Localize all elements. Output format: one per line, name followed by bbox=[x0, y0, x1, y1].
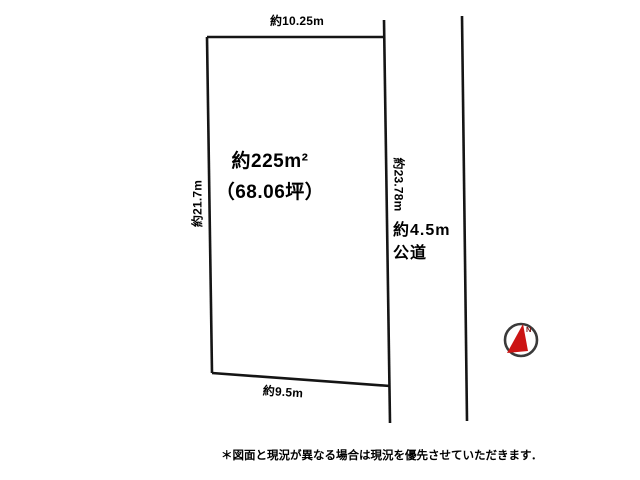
plot-outline-drawing: N bbox=[0, 0, 640, 480]
road-info-block: 約4.5m 公道 bbox=[393, 219, 450, 265]
plot-area-block: 約225m² （68.06坪） bbox=[180, 146, 360, 208]
top-width-dimension-label: 約10.25m bbox=[237, 12, 357, 29]
compass-icon: N bbox=[505, 324, 537, 356]
plot-area-tsubo-label: （68.06坪） bbox=[180, 177, 360, 208]
road-width-label: 約4.5m bbox=[393, 219, 450, 242]
right-height-dimension-label: 約23.78m bbox=[391, 140, 408, 230]
plot-area-sqm-label: 約225m² bbox=[180, 146, 360, 177]
plot-right-edge-road-left-line bbox=[384, 20, 390, 423]
land-plot-diagram: N 約10.25m 約21.7m 約23.78m 約9.5m 約225m² （6… bbox=[0, 0, 640, 480]
compass-north-label: N bbox=[526, 325, 531, 334]
road-right-line bbox=[462, 16, 467, 421]
road-type-label: 公道 bbox=[393, 242, 450, 265]
disclaimer-note: ＊図面と現況が異なる場合は現況を優先させていただきます． bbox=[221, 447, 543, 463]
